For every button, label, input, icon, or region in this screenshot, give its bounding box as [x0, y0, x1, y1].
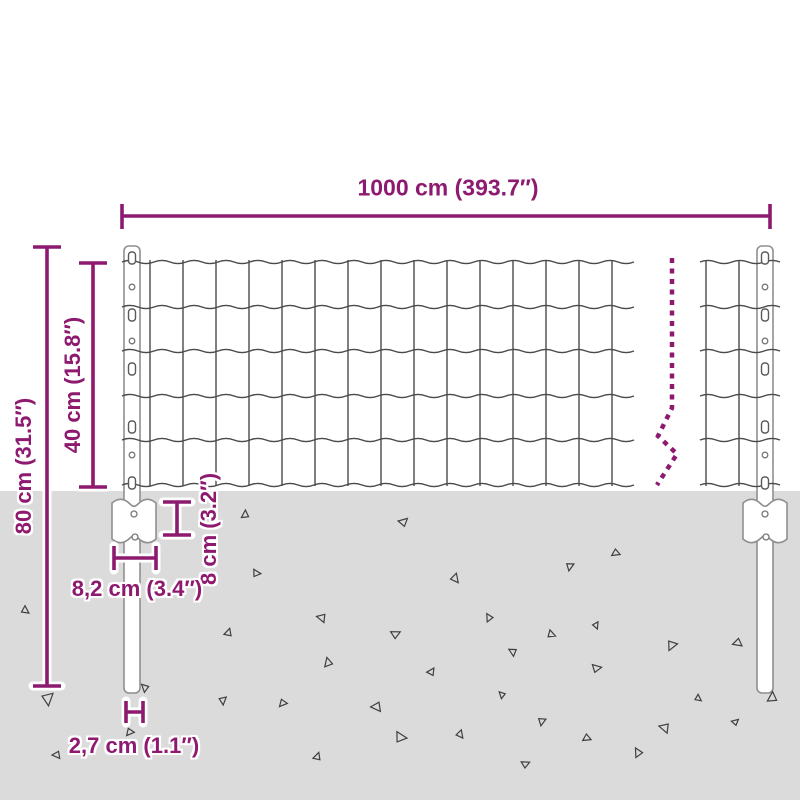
fence-dimension-diagram: 1000 cm (393.7″) 80 cm (31.5″) 40 cm (15… [0, 0, 800, 800]
wire-clip [129, 421, 136, 433]
bracket-hole [132, 534, 138, 540]
wire-clip [762, 309, 769, 321]
bracket-hole [131, 511, 137, 517]
post-hole [762, 338, 768, 344]
post-clips [129, 252, 769, 489]
length-break-indicator [657, 258, 677, 485]
label-mesh-height: 40 cm (15.8″) [60, 317, 86, 454]
wire-clip [762, 363, 769, 375]
mesh-wire-horizontal [122, 438, 634, 441]
mesh-wire-horizontal [122, 305, 634, 308]
wire-clip [762, 421, 769, 433]
bracket-hole [762, 511, 768, 517]
post-hole [129, 338, 135, 344]
label-total-height: 80 cm (31.5″) [11, 398, 37, 535]
label-anchor-width: 8,2 cm (3.4″) [72, 576, 202, 602]
diagram-canvas [0, 0, 800, 800]
mesh-wire-horizontal [122, 260, 634, 263]
mesh-wire-horizontal [122, 349, 634, 352]
wire-clip [129, 363, 136, 375]
wire-clip [129, 252, 136, 264]
post-hole [129, 284, 135, 290]
post-hole [129, 452, 135, 458]
wire-mesh [122, 260, 780, 487]
bracket-hole [763, 534, 769, 540]
post-hole [762, 284, 768, 290]
label-post-width: 2,7 cm (1.1″) [69, 733, 199, 759]
dim-total-width [122, 204, 770, 229]
mesh-wire-horizontal [122, 394, 634, 397]
wire-clip [762, 477, 769, 489]
label-total-width: 1000 cm (393.7″) [357, 175, 538, 202]
wire-clip [129, 477, 136, 489]
wire-clip [129, 309, 136, 321]
break-indicator-path [657, 258, 677, 485]
label-anchor-height: 8 cm (3.2″) [196, 473, 222, 585]
post-hole [762, 452, 768, 458]
wire-clip [762, 252, 769, 264]
